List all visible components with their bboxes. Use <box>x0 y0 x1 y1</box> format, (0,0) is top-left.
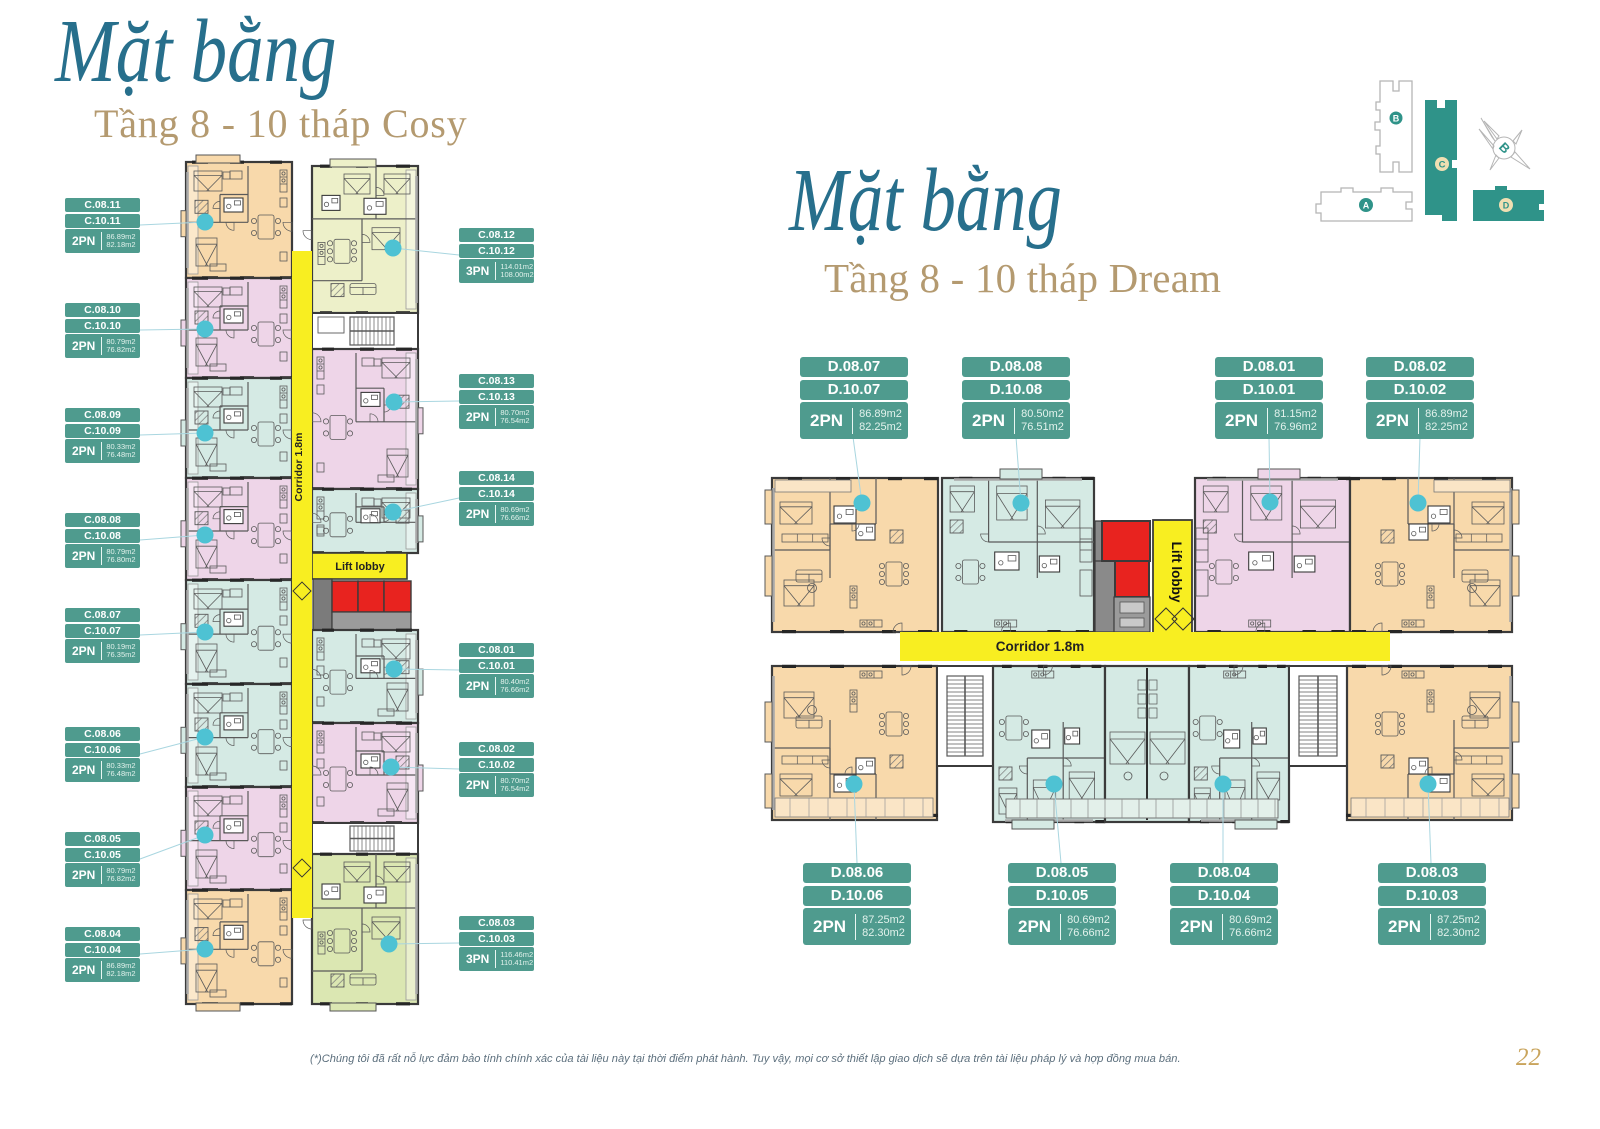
svg-text:Corridor 1.8m: Corridor 1.8m <box>996 639 1085 654</box>
svg-text:Corridor 1.8m: Corridor 1.8m <box>293 433 305 502</box>
svg-text:B: B <box>1393 114 1400 124</box>
svg-text:Lift lobby: Lift lobby <box>335 561 385 573</box>
svg-text:B: B <box>1496 139 1513 156</box>
svg-text:C: C <box>1439 160 1446 171</box>
svg-text:Lift lobby: Lift lobby <box>1169 542 1184 603</box>
svg-text:A: A <box>1363 201 1370 211</box>
svg-text:D: D <box>1503 201 1510 211</box>
